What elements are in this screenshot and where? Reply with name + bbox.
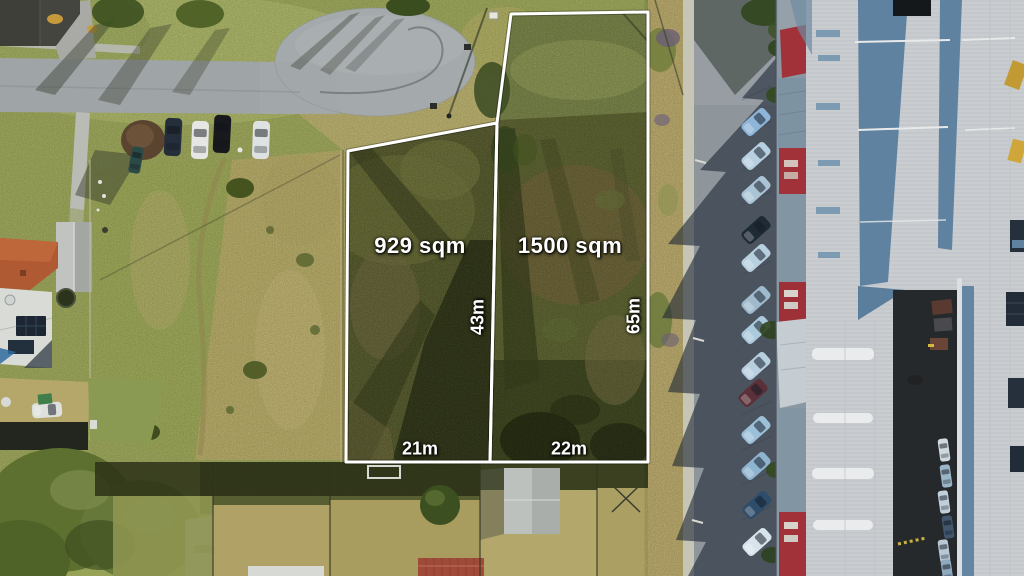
lot-1-fill bbox=[325, 120, 500, 470]
aerial-scene-svg bbox=[0, 0, 1024, 576]
aerial-photo: 929 sqm 1500 sqm 43m 65m 21m 22m bbox=[0, 0, 1024, 576]
lot-2-area-label: 1500 sqm bbox=[518, 233, 622, 259]
service-alley bbox=[893, 278, 974, 576]
lot-2-frontage-label: 22m bbox=[551, 439, 587, 460]
lot-1-depth-label: 43m bbox=[468, 299, 489, 335]
lot-2-depth-label: 65m bbox=[624, 298, 645, 334]
lot-1-frontage-label: 21m bbox=[402, 439, 438, 460]
bottom-backyards bbox=[95, 462, 660, 576]
lot-1-area-label: 929 sqm bbox=[374, 233, 466, 259]
